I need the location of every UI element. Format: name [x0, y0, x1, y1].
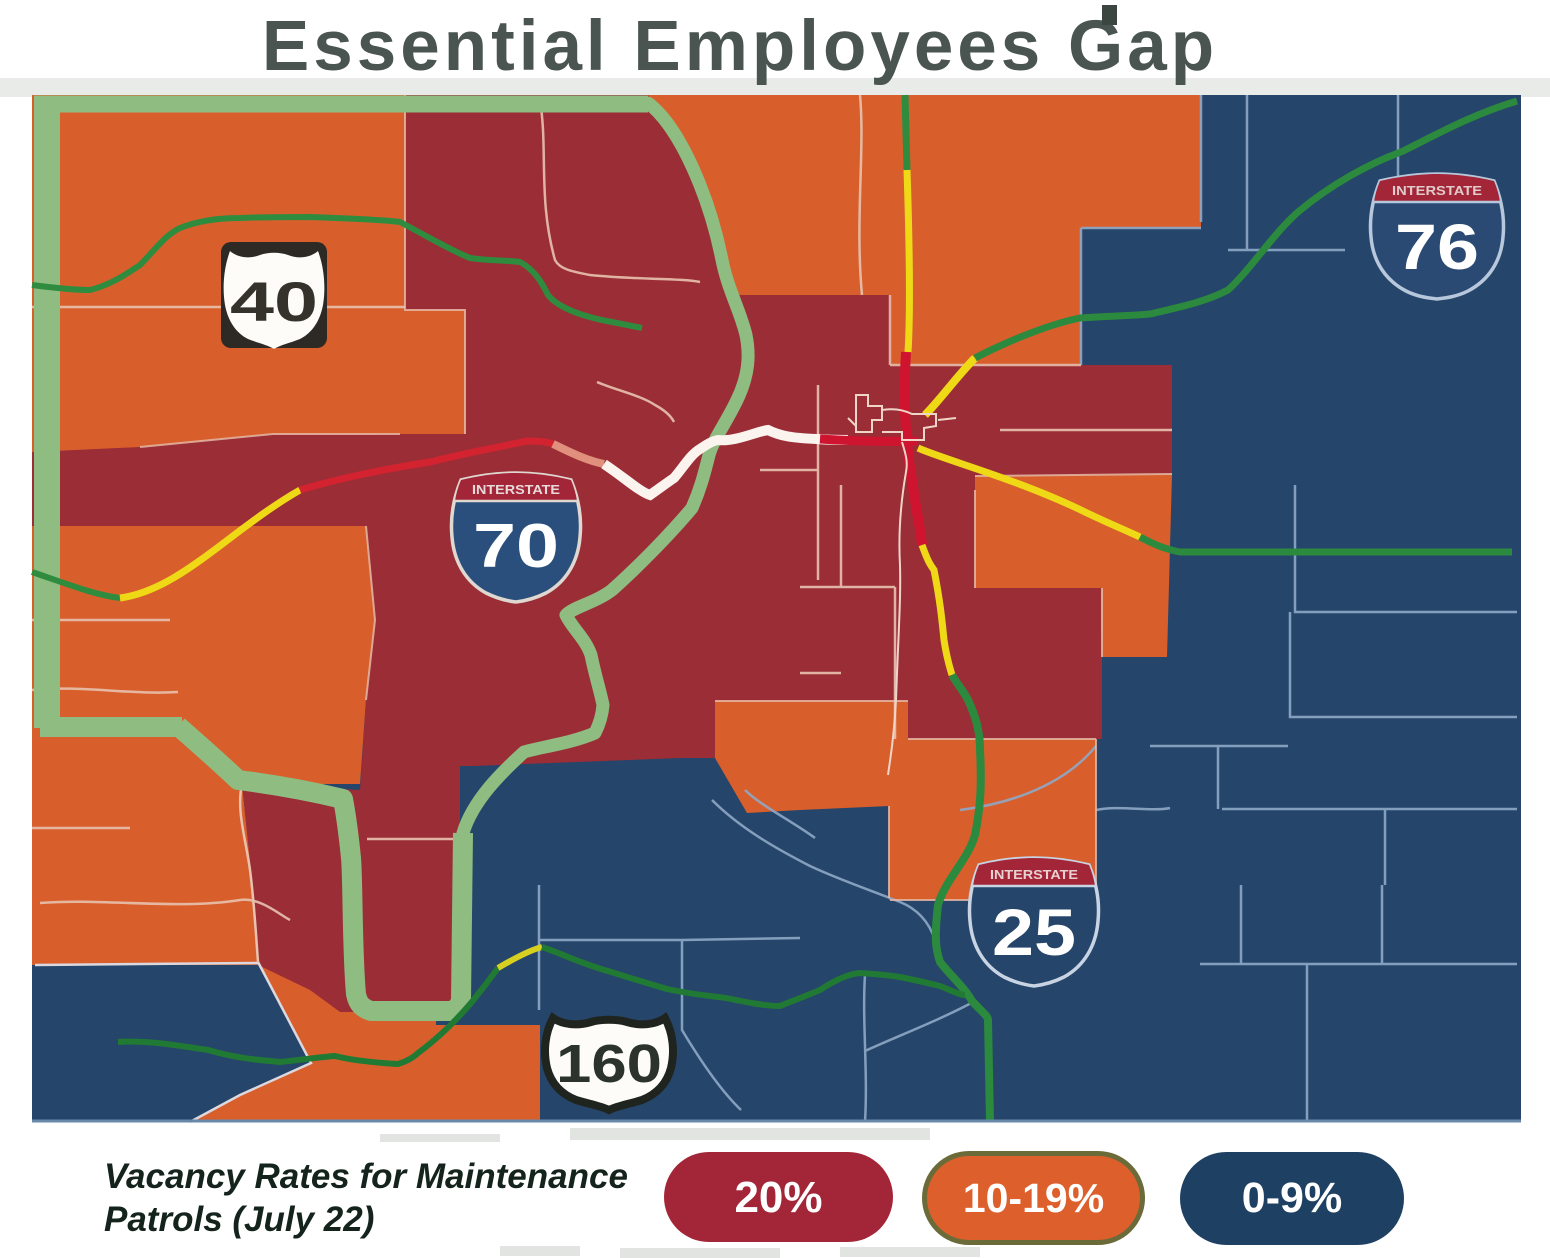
- svg-text:25: 25: [992, 895, 1076, 969]
- svg-text:160: 160: [556, 1034, 662, 1094]
- svg-text:INTERSTATE: INTERSTATE: [472, 482, 560, 497]
- svg-text:76: 76: [1395, 211, 1479, 283]
- svg-text:INTERSTATE: INTERSTATE: [990, 867, 1078, 882]
- svg-text:INTERSTATE: INTERSTATE: [1392, 183, 1482, 198]
- svg-text:40: 40: [230, 270, 318, 333]
- svg-text:70: 70: [473, 512, 559, 581]
